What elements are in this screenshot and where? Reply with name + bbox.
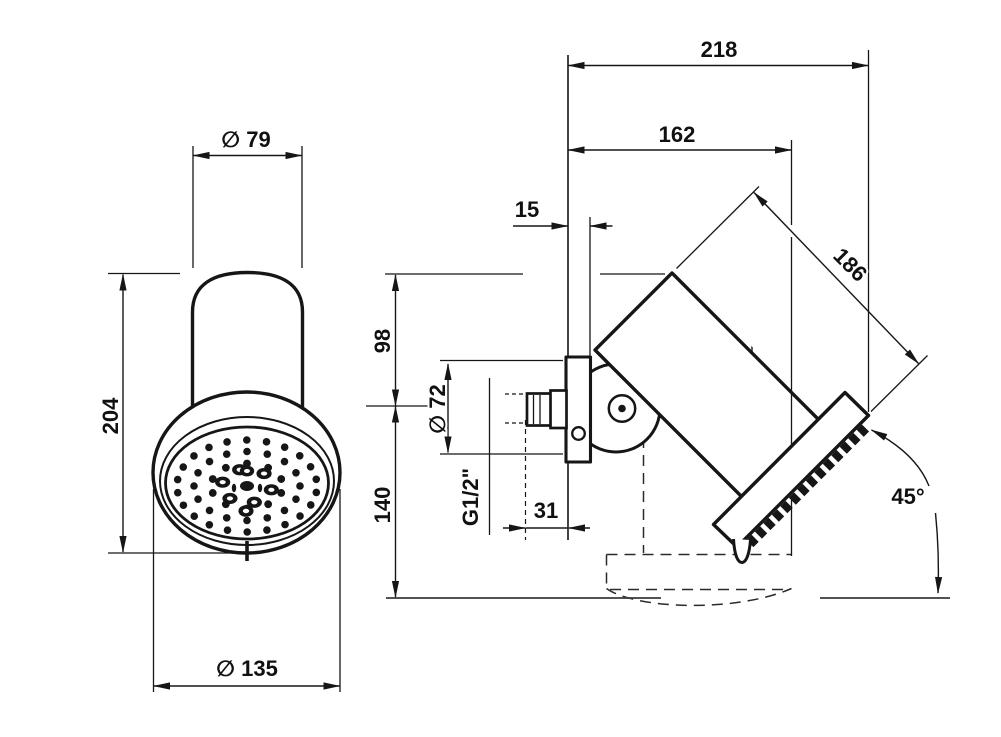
dim-label: 140 [370,487,395,524]
nozzle-dot [190,452,198,460]
nozzle-dot [296,482,304,490]
pivot-pin-center [618,405,626,413]
nozzle-dot [209,489,217,497]
nozzle-dot [222,464,230,472]
side-view: 218 162 15 186 98 140 ∅ 72 [366,37,950,605]
nozzle-dot [224,526,232,534]
dim-label: 186 [828,243,872,287]
nozzle-dot [292,495,300,503]
nozzle-dot [174,489,182,497]
dim-thread-to-wall: 31 [503,498,590,528]
nozzle-dot [264,500,272,508]
nozzle-dot [307,463,315,471]
technical-drawing: ∅ 79 204 ∅ 135 [0,0,1001,737]
dim-label: ∅ 79 [221,127,270,152]
dim-label: ∅ 135 [216,656,278,681]
dim-label: 218 [701,37,738,62]
nozzle-dot [240,481,254,491]
nozzle-dot [223,514,231,522]
nozzle-dot [268,488,274,492]
thread-collar [551,391,567,429]
dim-angle: 45° [872,430,939,593]
nozzle-dot [251,500,257,504]
side-bottom-nozzle [734,539,751,563]
dim-axis-to-bottom: 140 [370,407,396,598]
nozzle-dot [244,469,250,473]
nozzle-dot [307,501,315,509]
nozzle-dot [180,501,188,509]
nozzle-dot [296,452,304,460]
dim-label: 45° [891,484,924,509]
nozzle-dot [206,458,214,466]
nozzle-dot [243,509,249,513]
nozzle-dot [313,489,321,497]
dim-wall-to-front: 218 [569,37,869,66]
plate-screw-hole [572,427,585,440]
nozzle-dot [194,469,202,477]
nozzle-dot [263,514,271,522]
dim-top-to-axis: 98 [370,275,396,406]
nozzle-dot [206,507,214,515]
nozzle-dot [243,436,251,444]
dim-plate-depth: 15 [513,197,613,226]
nozzle-dot [243,528,251,536]
thread-label: G1/2" [458,468,483,526]
nozzle-dot [190,482,198,490]
nozzle-dot [174,476,182,484]
dim-wall-to-head: 162 [569,122,792,150]
dim-label: 15 [515,197,539,222]
nozzle-dot [261,471,267,475]
dim-diameter-top: ∅ 79 [193,127,302,268]
wall-plate [566,357,591,462]
nozzle-dot [243,517,251,525]
nozzle-dot [281,507,289,515]
nozzle-dot [263,438,271,446]
nozzle-dot [179,463,187,471]
nozzle-dot [281,521,289,529]
dim-label: 204 [98,397,123,434]
nozzle-dot [227,496,233,500]
nozzle-dot [243,448,251,456]
dim-label: 98 [370,329,395,353]
dim-label: 31 [534,498,558,523]
nozzle-dot [190,512,198,520]
nozzle-dot [312,476,320,484]
nozzle-dot [281,443,289,451]
nozzle-dot [296,512,304,520]
nozzle-dot [232,484,236,492]
nozzle-dot [277,475,285,483]
nozzle-dot [292,469,300,477]
dim-head-length: 186 [754,193,919,364]
nozzle-dot [263,450,271,458]
drawing-page: ∅ 79 204 ∅ 135 [0,0,1001,737]
nozzle-dot [194,495,202,503]
nozzle-dot [205,444,213,452]
dim-label: 162 [659,122,696,147]
nozzle-dot [281,458,289,466]
nozzle-dot [206,521,214,529]
front-view: ∅ 79 204 ∅ 135 [98,127,340,692]
nozzle-dot [258,484,262,492]
nozzle-dot [220,480,226,484]
nozzle-dot [223,438,231,446]
nozzle-dot [223,450,231,458]
dim-plate-diameter: ∅ 72 [425,364,450,453]
dim-label: ∅ 72 [425,384,450,433]
nozzle-dot [263,526,271,534]
